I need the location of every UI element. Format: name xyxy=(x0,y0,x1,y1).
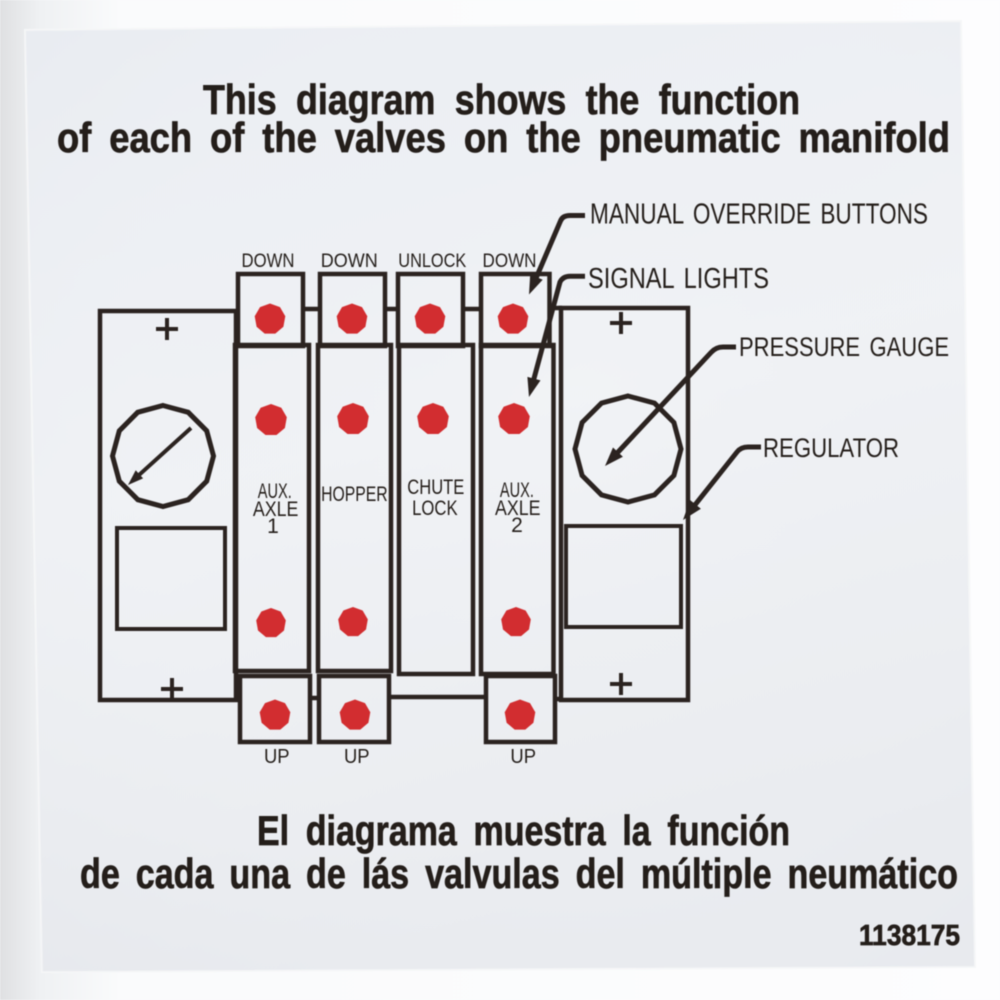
svg-text:DOWN: DOWN xyxy=(321,251,378,272)
svg-text:UNLOCK: UNLOCK xyxy=(398,251,466,272)
svg-text:HOPPER: HOPPER xyxy=(321,483,388,506)
svg-text:de cada una de lás valvulas de: de cada una de lás valvulas del múltiple… xyxy=(80,850,958,897)
svg-text:MANUAL OVERRIDE BUTTONS: MANUAL OVERRIDE BUTTONS xyxy=(590,199,928,231)
svg-text:UP: UP xyxy=(264,746,290,768)
svg-text:CHUTE: CHUTE xyxy=(407,476,464,499)
svg-text:2: 2 xyxy=(511,514,523,537)
svg-text:DOWN: DOWN xyxy=(483,251,537,272)
svg-text:PRESSURE GAUGE: PRESSURE GAUGE xyxy=(739,332,949,362)
svg-text:SIGNAL LIGHTS: SIGNAL LIGHTS xyxy=(588,263,769,295)
svg-text:UP: UP xyxy=(510,746,536,768)
svg-text:El diagrama muestra la función: El diagrama muestra la función xyxy=(257,807,790,854)
svg-text:UP: UP xyxy=(344,746,370,768)
svg-text:REGULATOR: REGULATOR xyxy=(763,433,899,463)
svg-text:1138175: 1138175 xyxy=(859,920,960,952)
svg-text:1: 1 xyxy=(267,515,279,538)
svg-text:LOCK: LOCK xyxy=(412,497,458,520)
svg-text:of each of the valves on the p: of each of the valves on the pneumatic m… xyxy=(57,114,950,161)
svg-text:DOWN: DOWN xyxy=(242,251,295,272)
